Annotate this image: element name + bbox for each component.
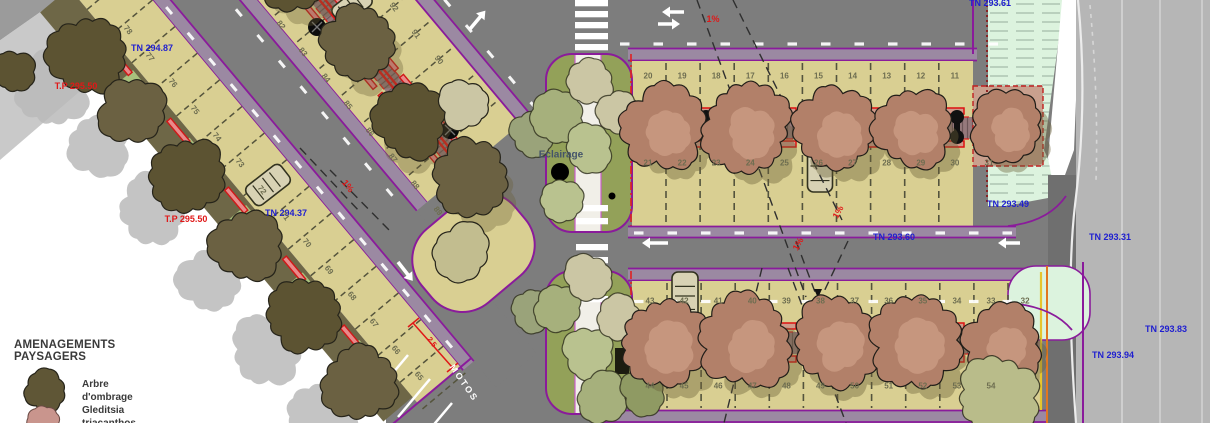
tree-symbol [0,51,35,91]
crosswalk-bar [575,0,608,6]
main-road-right [1076,0,1210,423]
crosswalk-bar [576,218,608,224]
road-edge-tick [855,42,865,45]
crosswalk-bar [575,22,608,28]
road-edge-tick [1003,231,1013,234]
road-edge-tick [989,42,999,45]
legend-item-arbre: Arbre d'ombrage Gleditsia triacanthos "I… [82,378,136,423]
legend-item-line2: Gleditsia triacanthos "Inermis" [82,404,136,423]
crosswalk-bar [576,244,608,250]
legend-title: AMENAGEMENTS PAYSAGERS [14,339,115,363]
eclairage-point [551,163,569,181]
road-edge-tick [936,231,946,234]
crosswalk-bar [575,44,608,50]
small-point [609,193,616,200]
site-plan-canvas: TN 294.87TN 294.37TN 293.61TN 293.49TN 2… [0,0,1210,423]
road-edge-tick [902,231,912,234]
plan-shape [950,110,964,124]
road-edge-tick [955,42,965,45]
road-edge-tick [869,231,879,234]
road-edge-tick [634,300,644,303]
site-plan-drawing [0,0,1210,423]
road-edge-tick [721,42,731,45]
road-edge-tick [687,42,697,45]
road-edge-tick [735,231,745,234]
road-edge-tick [969,231,979,234]
crosswalk-bar [575,11,608,17]
tree-highlight [893,111,938,155]
road-edge-tick [788,42,798,45]
road-edge-tick [768,231,778,234]
legend-item-line1: Arbre d'ombrage [82,378,136,404]
road-edge-tick [701,231,711,234]
road-edge-tick [654,42,664,45]
road-edge-tick [634,231,644,234]
road-edge-tick [701,300,711,303]
tree-symbol [97,80,167,143]
road-edge-tick [969,300,979,303]
road-edge-tick [620,42,630,45]
crosswalk-bar [575,33,608,39]
road-edge-tick [668,231,678,234]
road-edge-tick [802,231,812,234]
road-edge-tick [869,300,879,303]
road-edge-tick [821,42,831,45]
road-edge-tick [922,42,932,45]
road-edge-tick [888,42,898,45]
road-edge-tick [835,231,845,234]
